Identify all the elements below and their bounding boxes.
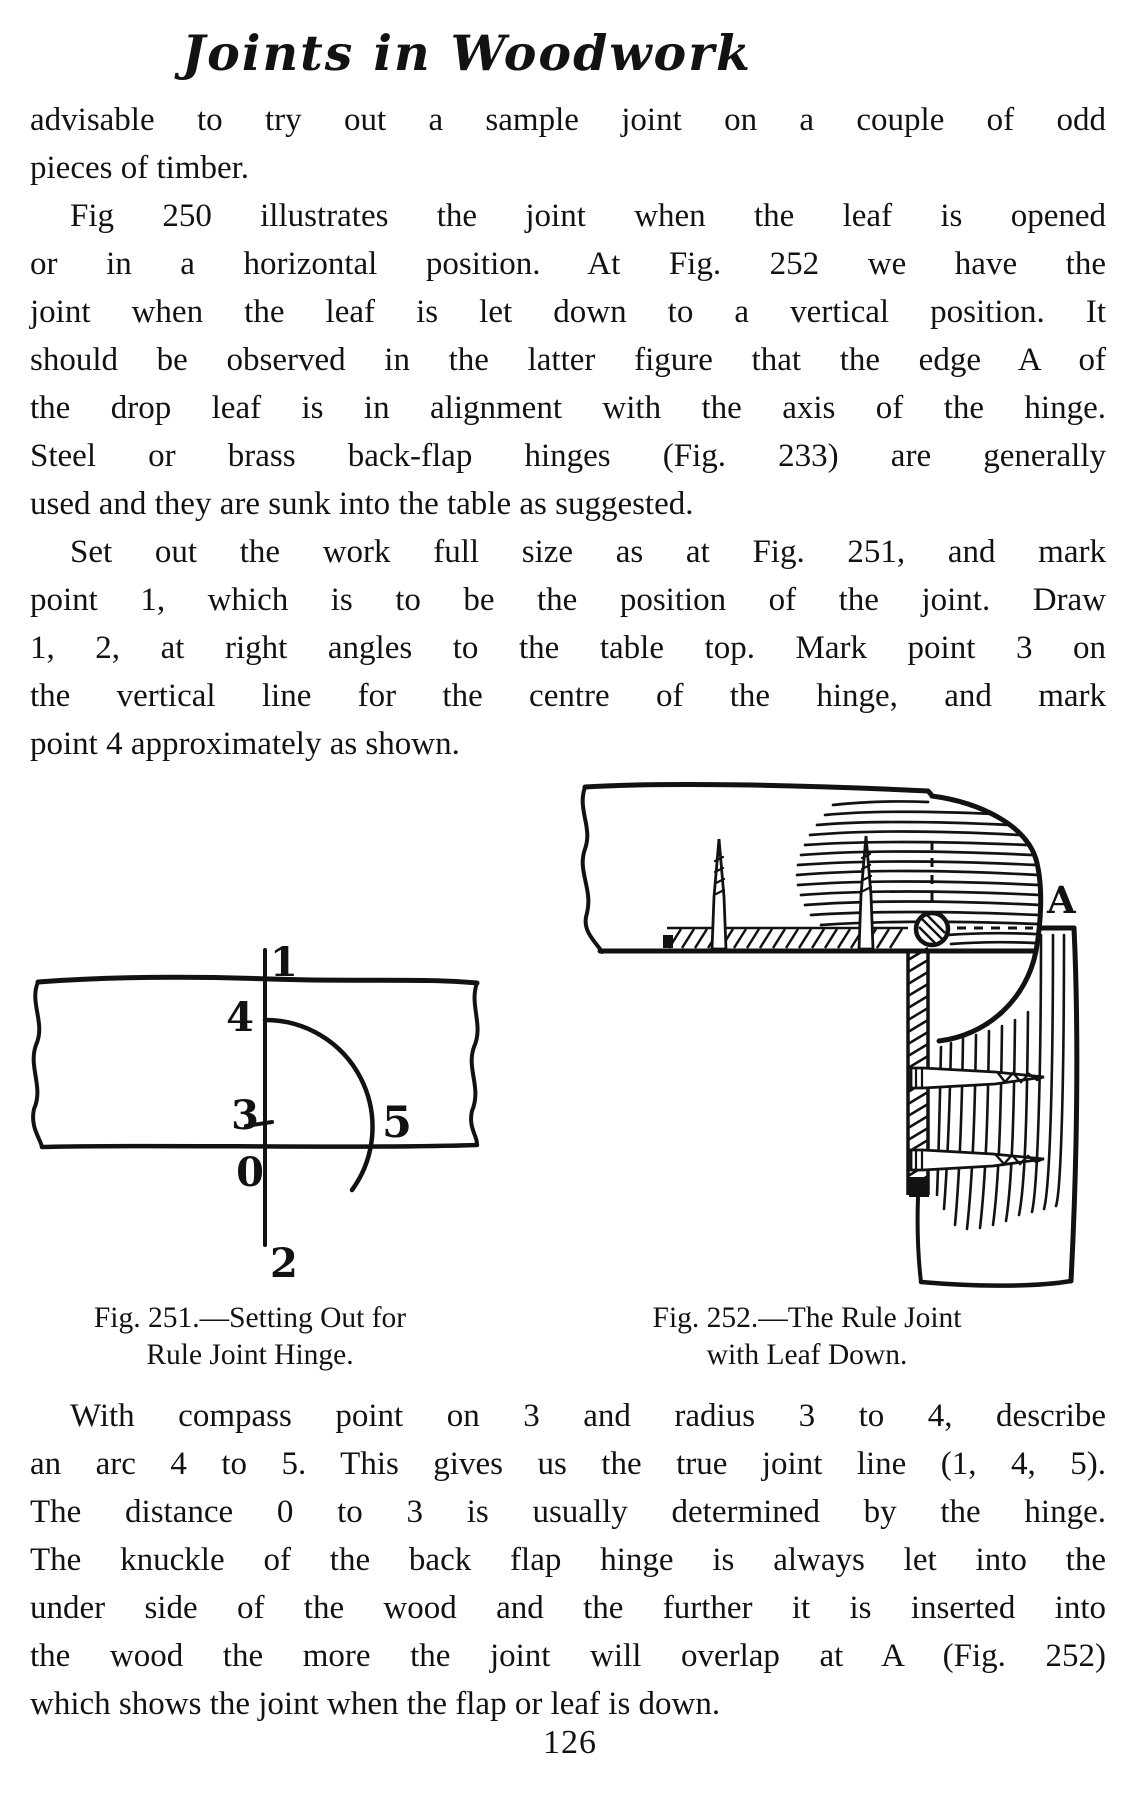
screw-left: [712, 839, 726, 949]
edge-label-A: A: [1046, 878, 1077, 922]
fig-251-caption: Fig. 251.—Setting Out for Rule Joint Hin…: [30, 1300, 470, 1374]
hinge-plate-leaf: [908, 948, 929, 1282]
paragraph-setout: Set out the work full size as at Fig. 25…: [30, 528, 1106, 768]
point-label-0: 0: [236, 1149, 264, 1196]
fig-252-drawing: A: [495, 765, 1085, 1305]
text-line: pieces of timber.: [30, 144, 1106, 192]
text-line: With compass point on 3 and radius 3 to …: [30, 1392, 1106, 1440]
text-line: point 4 approximately as shown.: [30, 720, 1106, 768]
text-line: the vertical line for the centre of the …: [30, 672, 1106, 720]
page-number: 126: [0, 1724, 1140, 1762]
text-line: under side of the wood and the further i…: [30, 1584, 1106, 1632]
text-line: Fig 250 illustrates the joint when the l…: [30, 192, 1106, 240]
caption-line: Fig. 252.—The Rule Joint: [562, 1300, 1052, 1337]
point-label-5: 5: [382, 1098, 412, 1148]
point-label-1: 1: [270, 939, 298, 986]
text-line: joint when the leaf is let down to a ver…: [30, 288, 1106, 336]
paragraph-continuation: advisable to try out a sample joint on a…: [30, 96, 1106, 192]
fig-251-drawing: 1 4 3 0 5 2: [25, 935, 490, 1283]
text-line: the wood the more the joint will overlap…: [30, 1632, 1106, 1680]
fig-252-caption: Fig. 252.—The Rule Joint with Leaf Down.: [562, 1300, 1052, 1374]
point-label-3: 3: [231, 1092, 259, 1139]
text-line: The knuckle of the back flap hinge is al…: [30, 1536, 1106, 1584]
page-scan: Joints in Woodwork advisable to try out …: [0, 0, 1140, 1816]
text-line: which shows the joint when the flap or l…: [30, 1680, 1106, 1728]
text-line: The distance 0 to 3 is usually determine…: [30, 1488, 1106, 1536]
caption-line: with Leaf Down.: [562, 1337, 1052, 1374]
board-top-edge: [38, 977, 477, 983]
board-right-torn-edge: [471, 983, 478, 1145]
text-line: point 1, which is to be the position of …: [30, 576, 1106, 624]
body-text-bottom: With compass point on 3 and radius 3 to …: [30, 1392, 1106, 1728]
body-text-top: advisable to try out a sample joint on a…: [30, 96, 1106, 768]
text-line: advisable to try out a sample joint on a…: [30, 96, 1106, 144]
text-line: 1, 2, at right angles to the table top. …: [30, 624, 1106, 672]
board-left-torn-edge: [33, 982, 42, 1147]
page-header: Joints in Woodwork: [0, 24, 934, 82]
joint-arc: [265, 1020, 373, 1190]
hinge-knuckle: [916, 913, 948, 945]
text-line: Set out the work full size as at Fig. 25…: [30, 528, 1106, 576]
paragraph-compass: With compass point on 3 and radius 3 to …: [30, 1392, 1106, 1728]
caption-line: Fig. 251.—Setting Out for: [30, 1300, 470, 1337]
page-title: Joints in Woodwork: [0, 24, 934, 82]
point-label-4: 4: [226, 994, 254, 1041]
text-line: the drop leaf is in alignment with the a…: [30, 384, 1106, 432]
text-line: should be observed in the latter figure …: [30, 336, 1106, 384]
point-label-2: 2: [270, 1240, 298, 1283]
text-line: or in a horizontal position. At Fig. 252…: [30, 240, 1106, 288]
text-line: an arc 4 to 5. This gives us the true jo…: [30, 1440, 1106, 1488]
paragraph-fig250: Fig 250 illustrates the joint when the l…: [30, 192, 1106, 528]
text-line: Steel or brass back-flap hinges (Fig. 23…: [30, 432, 1106, 480]
text-line: used and they are sunk into the table as…: [30, 480, 1106, 528]
caption-line: Rule Joint Hinge.: [30, 1337, 470, 1374]
